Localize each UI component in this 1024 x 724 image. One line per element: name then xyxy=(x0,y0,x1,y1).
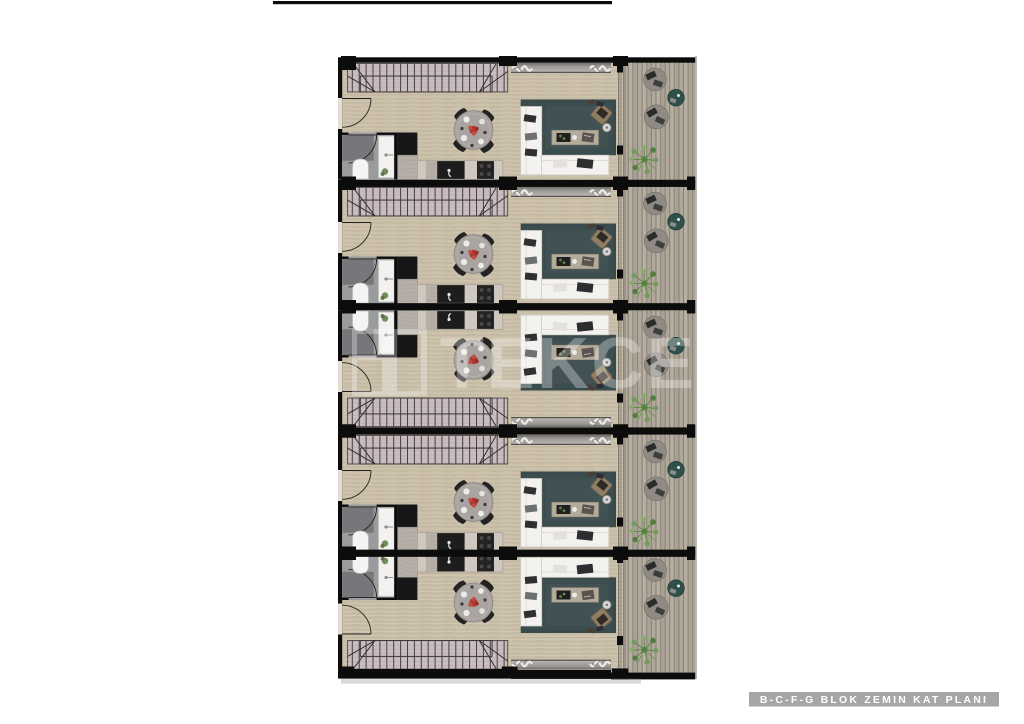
svg-text:B-C-F-G BLOK ZEMIN KAT PLANI: B-C-F-G BLOK ZEMIN KAT PLANI xyxy=(760,694,988,706)
svg-text:TEKCE: TEKCE xyxy=(440,324,697,404)
